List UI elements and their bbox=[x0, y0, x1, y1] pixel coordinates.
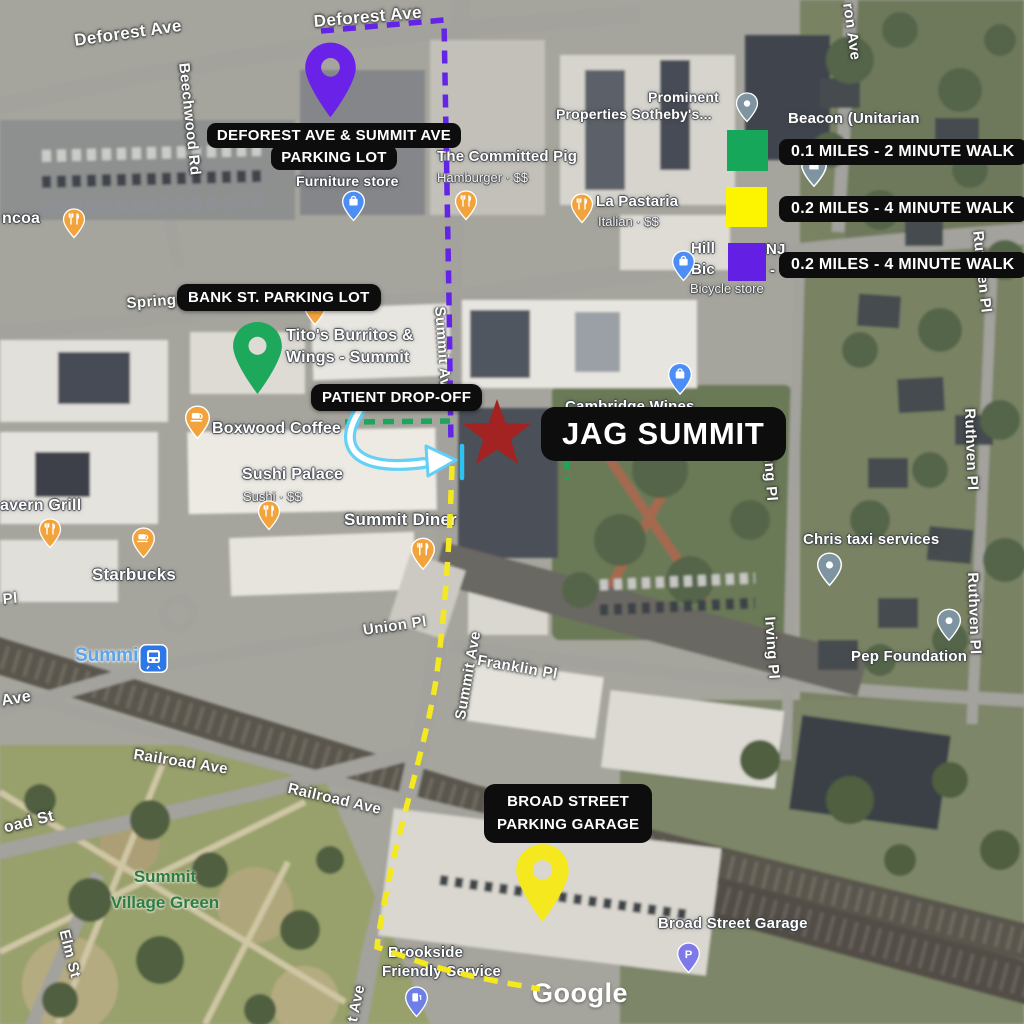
place-pin-icon[interactable] bbox=[735, 92, 759, 123]
annotation-broad-garage-line2: PARKING GARAGE bbox=[497, 814, 639, 837]
svg-text:P: P bbox=[685, 949, 693, 961]
street-label-ruthven-pl-mid: Ruthven Pl bbox=[961, 408, 981, 491]
restaurant-pin-icon[interactable] bbox=[62, 208, 86, 239]
poi-sublabel-bicycle-store: Bicycle store bbox=[690, 281, 764, 296]
poi-sublabel-la-pastaria: Italian · $$ bbox=[598, 214, 659, 229]
poi-label-pep-foundation[interactable]: Pep Foundation bbox=[851, 648, 967, 665]
poi-label-brookside-line1[interactable]: Brookside bbox=[388, 944, 463, 961]
coffee-pin-icon[interactable] bbox=[184, 405, 211, 440]
poi-label-summit-diner[interactable]: Summit Diner bbox=[344, 510, 457, 530]
purple-map-pin-deforest-lot[interactable] bbox=[303, 41, 358, 119]
poi-label-tavern-grill[interactable]: avern Grill bbox=[0, 497, 81, 515]
annotation-broad-garage: BROAD STREET PARKING GARAGE bbox=[484, 784, 652, 843]
annotation-deforest-lot-line2: PARKING LOT bbox=[271, 145, 397, 170]
legend-label-yellow: 0.2 MILES - 4 MINUTE WALK bbox=[779, 196, 1024, 222]
poi-label-prominent-line1[interactable]: Prominent bbox=[648, 89, 719, 105]
gas-station-pin-icon[interactable] bbox=[404, 986, 429, 1018]
park-label-summit-village-green[interactable]: Summit Village Green bbox=[100, 864, 230, 915]
annotation-bank-lot: BANK ST. PARKING LOT bbox=[177, 284, 381, 311]
poi-label-titos-line2[interactable]: Wings - Summit bbox=[286, 349, 410, 367]
annotation-patient-drop-off: PATIENT DROP-OFF bbox=[311, 384, 482, 411]
legend-label-purple: 0.2 MILES - 4 MINUTE WALK bbox=[779, 252, 1024, 278]
place-pin-icon[interactable] bbox=[816, 552, 843, 587]
poi-label-beacon[interactable]: Beacon (Unitarian bbox=[788, 110, 920, 127]
shopping-bag-pin-icon[interactable] bbox=[667, 362, 693, 396]
restaurant-pin-icon[interactable] bbox=[38, 518, 62, 549]
poi-label-sushi-palace[interactable]: Sushi Palace bbox=[242, 466, 343, 484]
restaurant-pin-icon[interactable] bbox=[257, 500, 281, 531]
street-label-spring-st: Spring bbox=[126, 292, 177, 312]
restaurant-pin-icon[interactable] bbox=[570, 193, 594, 224]
restaurant-pin-icon[interactable] bbox=[410, 537, 436, 571]
yellow-map-pin-broad-garage[interactable] bbox=[514, 842, 571, 924]
shopping-bag-pin-icon[interactable] bbox=[671, 250, 696, 282]
poi-label-committed-pig[interactable]: The Committed Pig bbox=[437, 148, 577, 165]
place-pin-icon[interactable] bbox=[936, 608, 962, 642]
restaurant-pin-icon[interactable] bbox=[454, 190, 478, 221]
street-label-ruthven-pl-low: Ruthven Pl bbox=[964, 572, 984, 655]
parking-pin-icon[interactable]: P bbox=[676, 942, 701, 974]
coffee-pin-icon[interactable] bbox=[131, 527, 156, 559]
annotation-jag-summit: JAG SUMMIT bbox=[541, 407, 786, 461]
poi-sublabel-committed-pig: Hamburger · $$ bbox=[437, 170, 528, 185]
poi-label-starbucks[interactable]: Starbucks bbox=[92, 565, 176, 585]
street-label-pl-fragment: Pl bbox=[2, 590, 18, 608]
legend-swatch-green bbox=[727, 130, 768, 171]
legend-swatch-purple bbox=[728, 243, 766, 281]
shopping-bag-pin-icon[interactable] bbox=[341, 190, 366, 222]
transit-station-label-summit[interactable]: Summit bbox=[75, 645, 145, 667]
poi-label-furniture-store[interactable]: Furniture store bbox=[296, 173, 399, 189]
train-station-badge-icon[interactable] bbox=[139, 644, 168, 673]
poi-label-prominent-line2[interactable]: Properties Sotheby's... bbox=[556, 106, 712, 122]
green-map-pin-bank-lot[interactable] bbox=[231, 318, 284, 398]
map-screenshot: Deforest Ave Deforest Ave Beechwood Rd S… bbox=[0, 0, 1024, 1024]
poi-label-broad-street-garage[interactable]: Broad Street Garage bbox=[658, 915, 808, 932]
poi-label-boxwood-coffee[interactable]: Boxwood Coffee bbox=[212, 420, 341, 438]
poi-label-brookside-line2[interactable]: Friendly Service bbox=[382, 963, 501, 980]
annotation-deforest-lot: DEFOREST AVE & SUMMIT AVE PARKING LOT bbox=[228, 123, 440, 170]
poi-label-chris-taxi[interactable]: Chris taxi services bbox=[803, 531, 939, 548]
poi-label-la-pastaria[interactable]: La Pastaria bbox=[596, 193, 678, 210]
google-logo: Google bbox=[532, 978, 628, 1009]
legend-label-green: 0.1 MILES - 2 MINUTE WALK bbox=[779, 139, 1024, 165]
poi-label-hill-frag4: - bbox=[770, 262, 775, 279]
legend-swatch-yellow bbox=[726, 187, 767, 227]
poi-label-ncoa[interactable]: ncoa bbox=[2, 210, 40, 228]
annotation-broad-garage-line1: BROAD STREET bbox=[497, 791, 639, 814]
poi-label-titos-line1[interactable]: Tito's Burritos & bbox=[286, 327, 414, 345]
